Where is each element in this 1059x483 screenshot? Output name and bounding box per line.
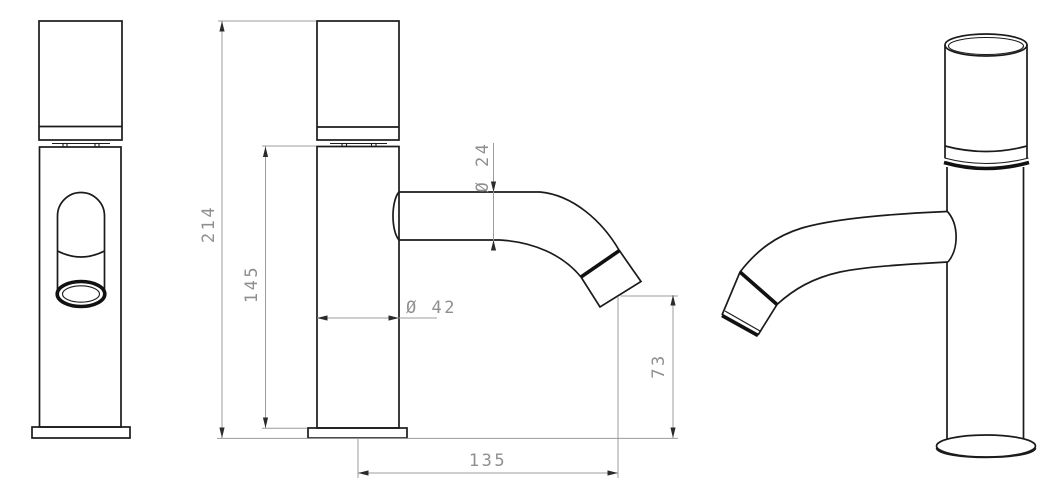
arrow-up xyxy=(670,295,675,306)
persp-body-sides xyxy=(947,167,1024,439)
arrow-right xyxy=(389,315,400,320)
persp-handle-sides xyxy=(945,45,1027,158)
side-spout-tip xyxy=(581,250,641,307)
dim-label-dia24: Ø 24 xyxy=(473,142,493,193)
front-outlet-inner xyxy=(63,286,100,302)
side-spout-bottom-edge xyxy=(399,240,581,277)
dim-label-135: 135 xyxy=(469,451,507,471)
drawing-svg: 214 145 Ø 24 Ø 42 73 xyxy=(0,0,1059,483)
arrow-up xyxy=(491,240,496,251)
side-spout-saddle xyxy=(393,192,399,240)
front-base-plate xyxy=(32,427,130,438)
dim-body-height: 145 xyxy=(242,146,316,428)
dimensions: 214 145 Ø 24 Ø 42 73 xyxy=(199,21,678,478)
dim-total-height: 214 xyxy=(199,21,316,438)
dim-label-214: 214 xyxy=(199,205,219,243)
dim-label-dia42: Ø 42 xyxy=(406,298,457,318)
persp-base-top xyxy=(937,435,1036,457)
dim-spout-reach: 135 xyxy=(358,297,618,479)
front-aerator-ring xyxy=(58,251,105,257)
persp-spout-saddle xyxy=(947,211,956,262)
persp-base-bottom xyxy=(937,448,1036,457)
front-handle-cap xyxy=(39,21,122,140)
persp-spout-bottom-edge xyxy=(758,262,948,335)
dim-body-diameter: Ø 42 xyxy=(317,298,457,321)
side-handle-cap xyxy=(317,21,399,140)
arrow-up xyxy=(263,147,268,158)
dim-outlet-height: 73 xyxy=(621,295,679,438)
side-base-plate xyxy=(308,428,407,438)
side-view xyxy=(308,21,641,438)
side-aerator-ring xyxy=(581,251,620,278)
arrow-left xyxy=(317,315,328,320)
arrow-up xyxy=(219,21,224,32)
perspective-view xyxy=(722,34,1036,457)
arrow-down xyxy=(263,418,268,429)
arrow-right xyxy=(608,470,619,475)
dim-spout-diameter: Ø 24 xyxy=(473,142,496,251)
front-view xyxy=(32,21,130,438)
arrow-down xyxy=(670,428,675,439)
dim-label-73: 73 xyxy=(649,353,669,378)
front-body xyxy=(40,147,122,427)
dim-label-145: 145 xyxy=(242,265,262,303)
faucet-technical-drawing: 214 145 Ø 24 Ø 42 73 xyxy=(0,0,1059,483)
side-body xyxy=(317,147,399,429)
persp-handle-top-inner xyxy=(949,38,1024,55)
persp-ring-upper xyxy=(945,158,1029,164)
front-spout-silhouette xyxy=(58,193,105,295)
persp-outlet-rim xyxy=(722,316,758,336)
arrow-left xyxy=(358,470,369,475)
persp-aerator-ring xyxy=(740,272,777,305)
arrow-down xyxy=(219,428,224,439)
persp-handle-band xyxy=(945,146,1027,152)
